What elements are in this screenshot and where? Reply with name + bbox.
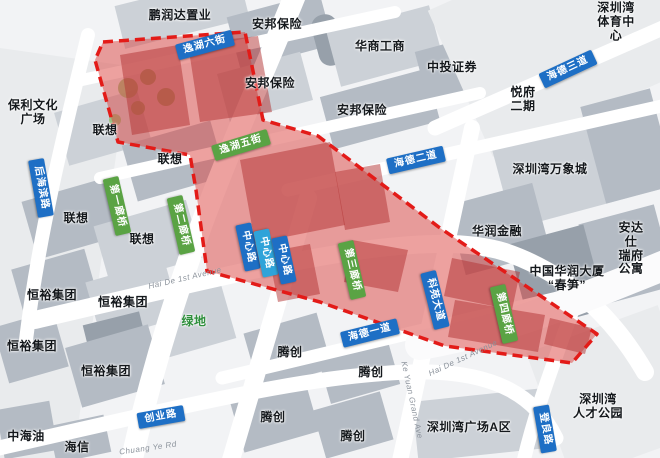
area-label: 联想	[63, 212, 88, 226]
area-label: 腾创	[260, 411, 285, 425]
corridor-badge: 第四廊桥	[490, 284, 519, 344]
area-label: 安达仕 瑞府公寓	[617, 221, 646, 276]
area-label: 保利文化 广场	[8, 99, 58, 127]
area-label: 恒裕集团	[81, 365, 131, 379]
street-badge: 科苑大道	[420, 270, 450, 330]
area-label: 华润金融	[472, 225, 522, 239]
area-label: 绿地	[181, 315, 206, 329]
area-label: 腾创	[277, 346, 302, 360]
area-label: 恒裕集团	[27, 289, 77, 303]
map-canvas: 鹏润达置业安邦保险华商工商深圳湾 体育中心安邦保险中投证券安邦保险悦府 二期保利…	[0, 0, 660, 458]
street-name-label: Ke Yuan Grand Ave	[399, 361, 424, 440]
area-label: 中海油	[7, 430, 45, 444]
area-label: 中投证券	[427, 61, 477, 75]
area-label: 鹏润达置业	[149, 9, 212, 23]
street-badge: 中心路	[271, 235, 296, 284]
street-badge: 海德二道	[386, 146, 446, 175]
area-label: 安邦保险	[252, 18, 302, 32]
area-label: 联想	[129, 233, 154, 247]
area-label: 安邦保险	[337, 104, 387, 118]
area-label: 华商工商	[355, 40, 405, 54]
area-label: 恒裕集团	[7, 340, 57, 354]
street-badge: 海德三道	[538, 49, 597, 88]
street-name-label: Chuang Ye Rd	[119, 440, 178, 457]
area-label: 联想	[92, 124, 117, 138]
corridor-badge: 第三廊桥	[338, 240, 367, 300]
area-label: 深圳湾 人才公园	[573, 393, 623, 421]
corridor-badge: 逸湖五街	[211, 129, 271, 161]
corridor-badge: 第二廊桥	[167, 195, 196, 255]
street-name-label: Hai De 1st Avenue	[148, 265, 223, 291]
street-badge: 逸湖六街	[175, 30, 235, 60]
area-label: 悦府 二期	[510, 86, 535, 114]
area-label: 深圳湾万象城	[512, 163, 587, 177]
labels-layer: 鹏润达置业安邦保险华商工商深圳湾 体育中心安邦保险中投证券安邦保险悦府 二期保利…	[0, 0, 660, 458]
street-badge: 海德一道	[340, 318, 400, 348]
corridor-badge: 第一廊桥	[103, 176, 132, 236]
area-label: 腾创	[340, 430, 365, 444]
area-label: 恒裕集团	[98, 296, 148, 310]
area-label: 中国华润大厦 “春笋”	[529, 265, 604, 293]
area-label: 安邦保险	[245, 77, 295, 91]
street-name-label: Hai De 1st Avenue	[427, 338, 499, 378]
area-label: 联想	[157, 153, 182, 167]
street-badge: 登良路	[533, 404, 557, 453]
area-label: 深圳湾 体育中心	[594, 1, 638, 42]
street-badge: 后海滨路	[28, 158, 54, 218]
street-badge: 创业路	[136, 405, 185, 429]
area-label: 深圳湾广场A区	[427, 421, 511, 435]
area-label: 腾创	[358, 366, 383, 380]
area-label: 海信	[64, 441, 89, 455]
